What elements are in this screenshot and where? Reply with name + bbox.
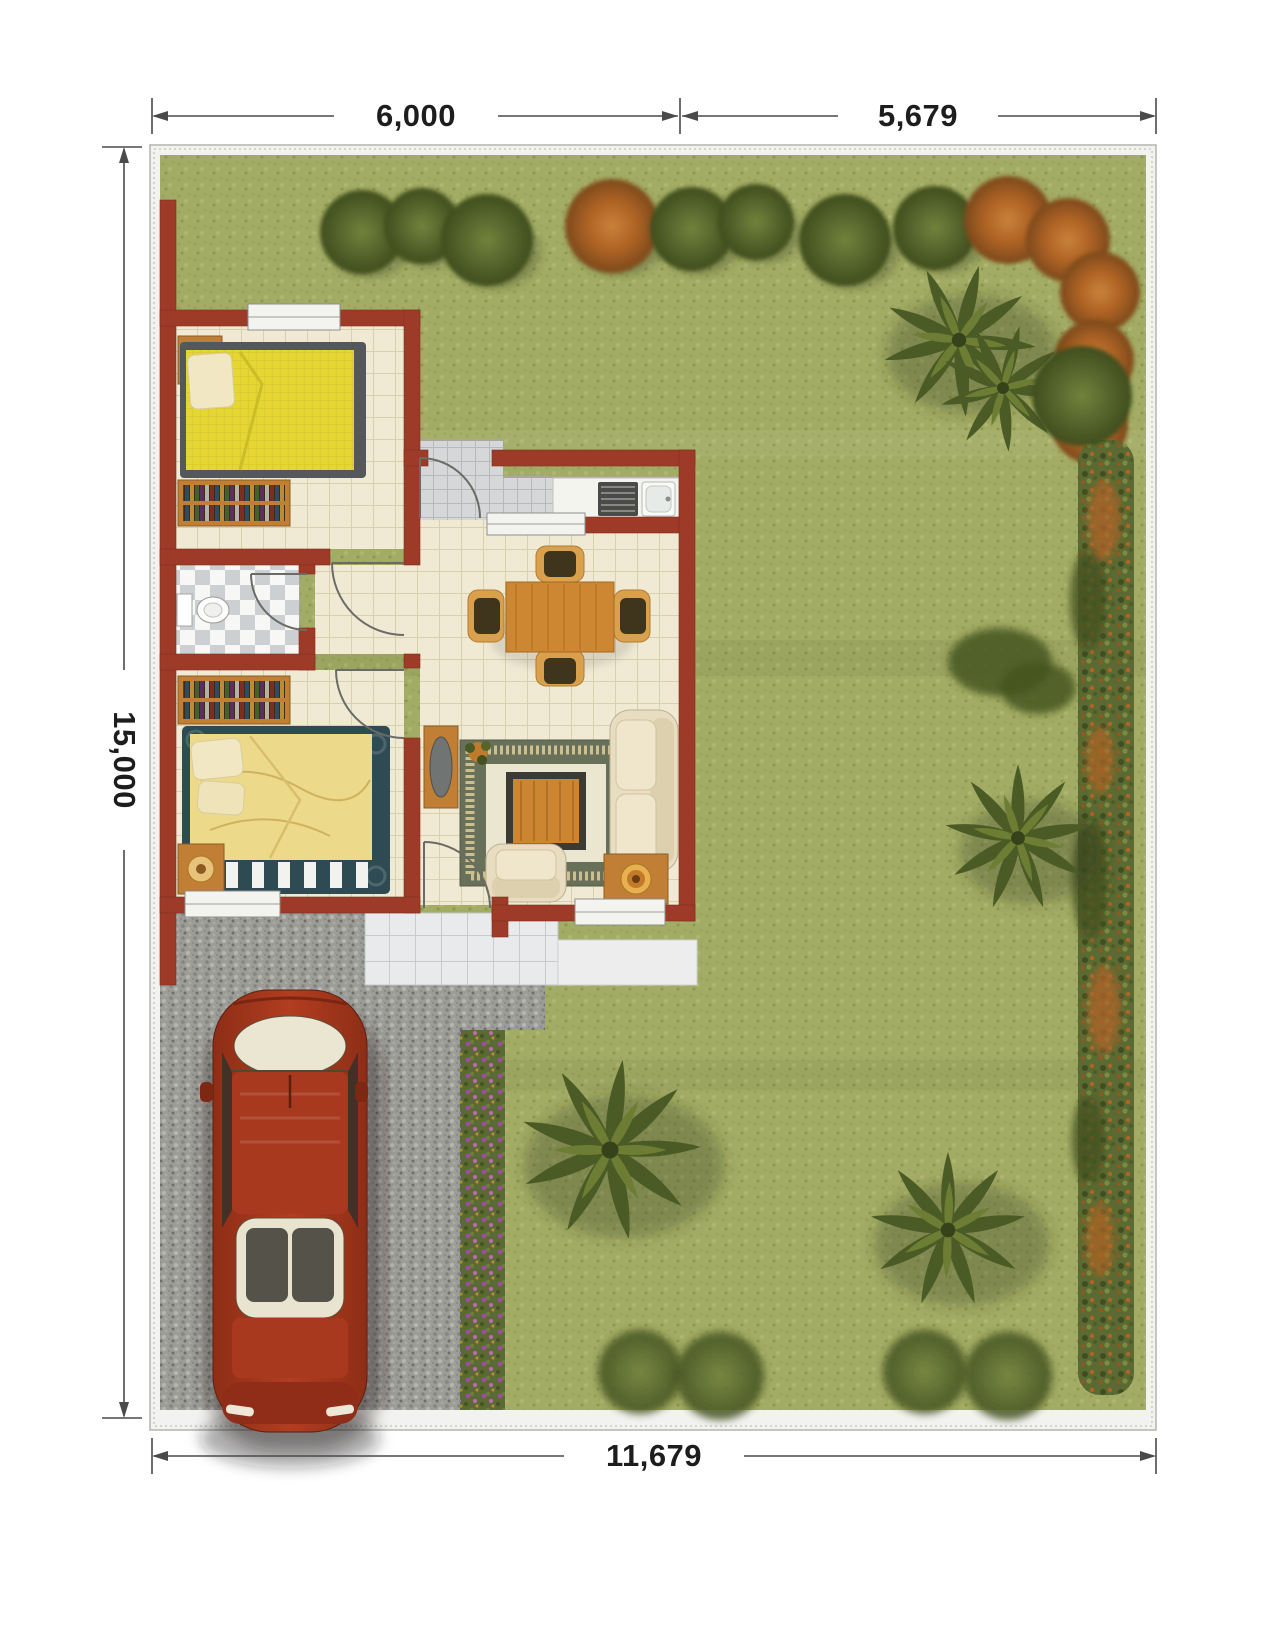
dining-table — [506, 582, 614, 652]
dining-chair — [536, 546, 584, 582]
mirror-right — [355, 1082, 368, 1102]
walkway — [558, 940, 697, 985]
mirror-left — [200, 1082, 213, 1102]
pillow — [187, 353, 235, 410]
right-hedge — [1070, 440, 1134, 1395]
car — [200, 990, 383, 1468]
dining-chair — [468, 590, 504, 642]
coffee-table — [506, 772, 586, 850]
pillow — [190, 737, 244, 780]
windshield — [234, 1016, 346, 1076]
shrub-green — [718, 184, 794, 260]
mirror — [430, 737, 452, 797]
dining-chair — [614, 590, 650, 642]
dimension-bottom: 11,679 — [574, 1438, 734, 1474]
flower-bed — [460, 1030, 505, 1410]
dimension-top-right: 5,679 — [848, 98, 988, 134]
armchair — [486, 844, 566, 902]
shrub-orange — [1060, 252, 1140, 332]
dimension-left: 15,000 — [106, 680, 142, 840]
side-window — [348, 1052, 358, 1228]
sofa — [610, 710, 678, 872]
bathroom-floor — [176, 565, 299, 654]
shrub-orange — [565, 179, 659, 273]
shrub-green — [799, 194, 891, 286]
shrub-green — [441, 194, 533, 286]
hallway-floor — [315, 565, 420, 654]
bookshelf — [178, 676, 290, 724]
seat — [246, 1228, 288, 1302]
pass-through-window — [487, 513, 585, 535]
site-plan-drawing — [0, 0, 1275, 1650]
stove — [598, 482, 638, 516]
site-plan-page: 6,000 5,679 15,000 11,679 — [0, 0, 1275, 1650]
side-table — [604, 854, 668, 904]
dimension-top-left: 6,000 — [346, 98, 486, 134]
window — [185, 891, 280, 917]
dining-chair — [536, 650, 584, 686]
dimension-line-top — [152, 98, 1156, 134]
trunk — [232, 1318, 348, 1378]
window — [575, 899, 665, 925]
bookshelf — [178, 480, 290, 526]
sink — [642, 482, 675, 516]
bumper — [222, 1382, 358, 1424]
seat — [292, 1228, 334, 1302]
side-window — [222, 1052, 232, 1228]
nightstand — [178, 844, 224, 894]
single-bed — [180, 342, 366, 478]
shrub-green — [893, 186, 977, 270]
pillow — [197, 780, 245, 815]
window — [248, 304, 340, 330]
console-table — [424, 726, 458, 808]
faucet — [666, 497, 671, 502]
porch — [365, 913, 558, 985]
shrub-green — [1032, 346, 1132, 446]
